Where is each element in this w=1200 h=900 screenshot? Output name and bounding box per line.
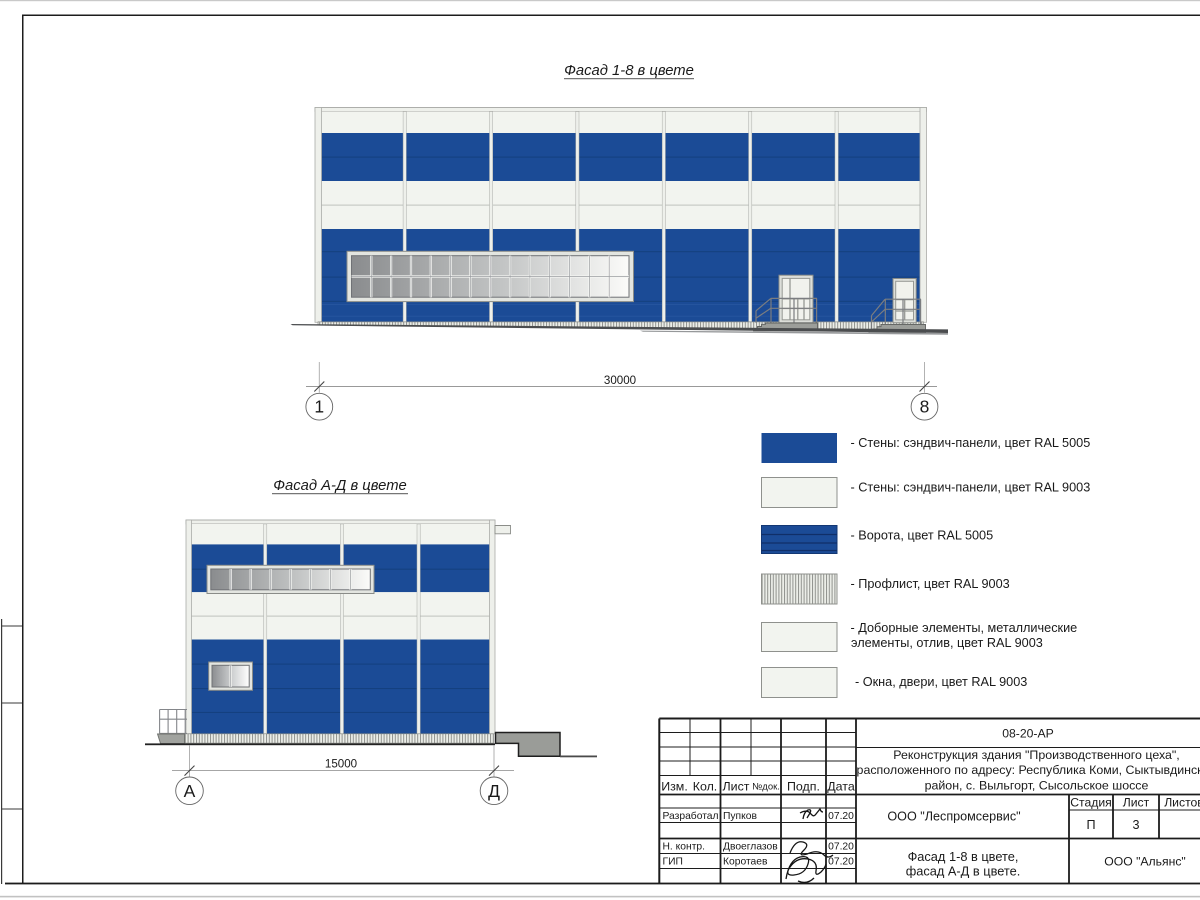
svg-text:- Стены: сэндвич-панели, цвет: - Стены: сэндвич-панели, цвет RAL 5005: [851, 436, 1091, 450]
svg-text:8: 8: [920, 397, 930, 417]
svg-text:П: П: [1086, 818, 1095, 832]
svg-text:Фасад А-Д в цвете: Фасад А-Д в цвете: [273, 478, 407, 494]
svg-text:Реконструкция здания "Производ: Реконструкция здания "Производственного …: [893, 748, 1179, 762]
svg-text:Лист: Лист: [1123, 796, 1150, 810]
svg-text:ООО "Альянс": ООО "Альянс": [1104, 855, 1186, 869]
svg-text:1: 1: [314, 397, 324, 417]
svg-text:15000: 15000: [325, 757, 357, 770]
svg-text:Н. контр.: Н. контр.: [663, 842, 706, 853]
svg-text:Изм.: Изм.: [661, 780, 688, 794]
svg-text:Коротаев: Коротаев: [723, 857, 768, 868]
svg-text:А: А: [184, 781, 196, 801]
svg-text:07.20: 07.20: [828, 811, 854, 822]
svg-text:фасад А-Д в цвете.: фасад А-Д в цвете.: [906, 864, 1021, 879]
svg-text:Лист: Лист: [723, 780, 750, 794]
svg-text:район, с. Выльгорт, Сысольское: район, с. Выльгорт, Сысольское шоссе: [925, 778, 1149, 792]
svg-text:расположенного по адресу: Респ: расположенного по адресу: Республика Ком…: [857, 763, 1200, 777]
svg-text:- Стены: сэндвич-панели, цвет: - Стены: сэндвич-панели, цвет RAL 9003: [851, 481, 1091, 495]
svg-text:Листов: Листов: [1164, 796, 1200, 810]
svg-text:07.20: 07.20: [828, 857, 854, 868]
svg-text:Стадия: Стадия: [1070, 796, 1112, 810]
svg-text:№док.: №док.: [752, 782, 780, 793]
svg-text:- Доборные элементы, металличе: - Доборные элементы, металлические: [851, 621, 1078, 635]
svg-text:Фасад 1-8 в цвете,: Фасад 1-8 в цвете,: [908, 849, 1019, 864]
svg-text:07.20: 07.20: [828, 842, 854, 853]
svg-text:Пупков: Пупков: [723, 811, 757, 822]
svg-text:ООО "Леспромсервис": ООО "Леспромсервис": [887, 810, 1020, 824]
svg-text:3: 3: [1132, 818, 1139, 832]
svg-text:- Ворота, цвет RAL 5005: - Ворота, цвет RAL 5005: [851, 529, 994, 543]
svg-text:- Окна, двери, цвет RAL 9003: - Окна, двери, цвет RAL 9003: [855, 675, 1027, 689]
svg-text:Двоеглазов: Двоеглазов: [723, 842, 778, 853]
svg-text:Кол.: Кол.: [693, 780, 718, 794]
svg-text:элементы, отлив, цвет RAL 9003: элементы, отлив, цвет RAL 9003: [851, 636, 1043, 650]
svg-text:08-20-АР: 08-20-АР: [1002, 727, 1054, 741]
svg-text:Фасад 1-8 в цвете: Фасад 1-8 в цвете: [564, 63, 694, 79]
svg-text:Дата: Дата: [827, 780, 855, 794]
svg-text:Подп.: Подп.: [787, 780, 820, 794]
svg-text:Д: Д: [488, 781, 500, 801]
svg-text:- Профлист, цвет RAL 9003: - Профлист, цвет RAL 9003: [851, 577, 1010, 591]
svg-text:30000: 30000: [604, 374, 636, 387]
svg-text:ГИП: ГИП: [663, 857, 683, 868]
svg-text:Разработал: Разработал: [663, 810, 719, 822]
